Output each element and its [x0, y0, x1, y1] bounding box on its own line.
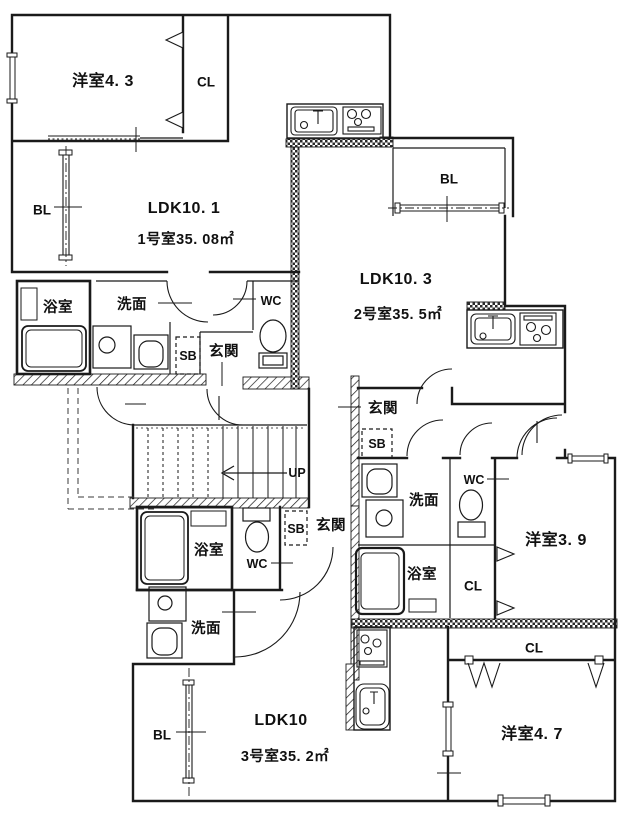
apartment-floor-plan: 洋室4. 3 CL BL LDK10. 1 1号室35. 08㎡ 浴室 洗面 W… [0, 0, 632, 824]
unit1-balcony-label: BL [33, 203, 51, 217]
unit3-room-label: 洋室4. 7 [501, 727, 563, 743]
stairs [136, 426, 305, 498]
kitchen-sink-stove-icon [467, 310, 563, 348]
eave-outline [68, 388, 156, 509]
unit1-entrance-label: 玄関 [209, 345, 239, 360]
unit3-area-label: 3号室35. 2㎡ [241, 750, 329, 765]
unit2-shoebox-label: SB [368, 438, 385, 451]
unit2-closet-label: CL [464, 579, 482, 593]
unit1-shoebox-label: SB [179, 350, 196, 363]
unit3-closet-label: CL [525, 641, 543, 655]
unit2-wc-label: WC [464, 474, 485, 487]
unit1-area-label: 1号室35. 08㎡ [138, 233, 235, 248]
bathtub-icon [17, 281, 90, 374]
door-arcs [97, 281, 562, 657]
floorplan-drawing [0, 0, 632, 824]
window-symbols [7, 53, 608, 806]
unit2-wash-label: 洗面 [409, 494, 439, 509]
unit3-bath-label: 浴室 [194, 544, 224, 559]
unit3-balcony-label: BL [153, 728, 171, 742]
unit3-wc-label: WC [247, 558, 268, 571]
unit2-room-label: 洋室3. 9 [525, 533, 587, 549]
unit1-bath-label: 浴室 [43, 301, 73, 316]
kitchen-sink-stove-icon [287, 104, 383, 138]
unit3-shoebox-label: SB [287, 523, 304, 536]
unit3-wash-label: 洗面 [191, 622, 221, 637]
walls [12, 15, 615, 801]
unit1-wash-label: 洗面 [117, 298, 147, 313]
unit3-ldk-label: LDK10 [254, 713, 307, 729]
bifold-door-marks [468, 663, 604, 687]
unit2-balcony-label: BL [440, 172, 458, 186]
unit2-ldk-label: LDK10. 3 [360, 272, 432, 288]
unit2-bath-label: 浴室 [407, 568, 437, 583]
unit1-room-label: 洋室4. 3 [72, 74, 134, 90]
unit2-entrance-label: 玄関 [368, 402, 398, 417]
unit3-entrance-label: 玄関 [316, 519, 346, 534]
unit1-ldk-label: LDK10. 1 [148, 201, 220, 217]
unit2-area-label: 2号室35. 5㎡ [354, 308, 442, 323]
unit1-wc-label: WC [261, 295, 282, 308]
unit1-closet-label: CL [197, 75, 215, 89]
stairs-up-label: UP [288, 467, 305, 480]
